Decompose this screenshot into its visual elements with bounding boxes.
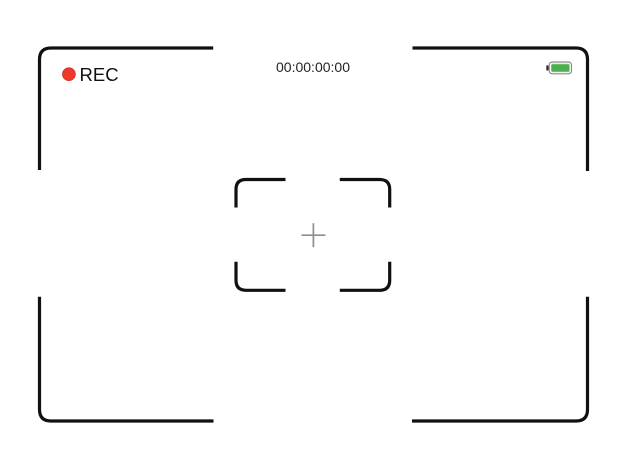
svg-text:00:00:00:00: 00:00:00:00 (276, 59, 350, 75)
svg-text:REC: REC (80, 64, 119, 85)
